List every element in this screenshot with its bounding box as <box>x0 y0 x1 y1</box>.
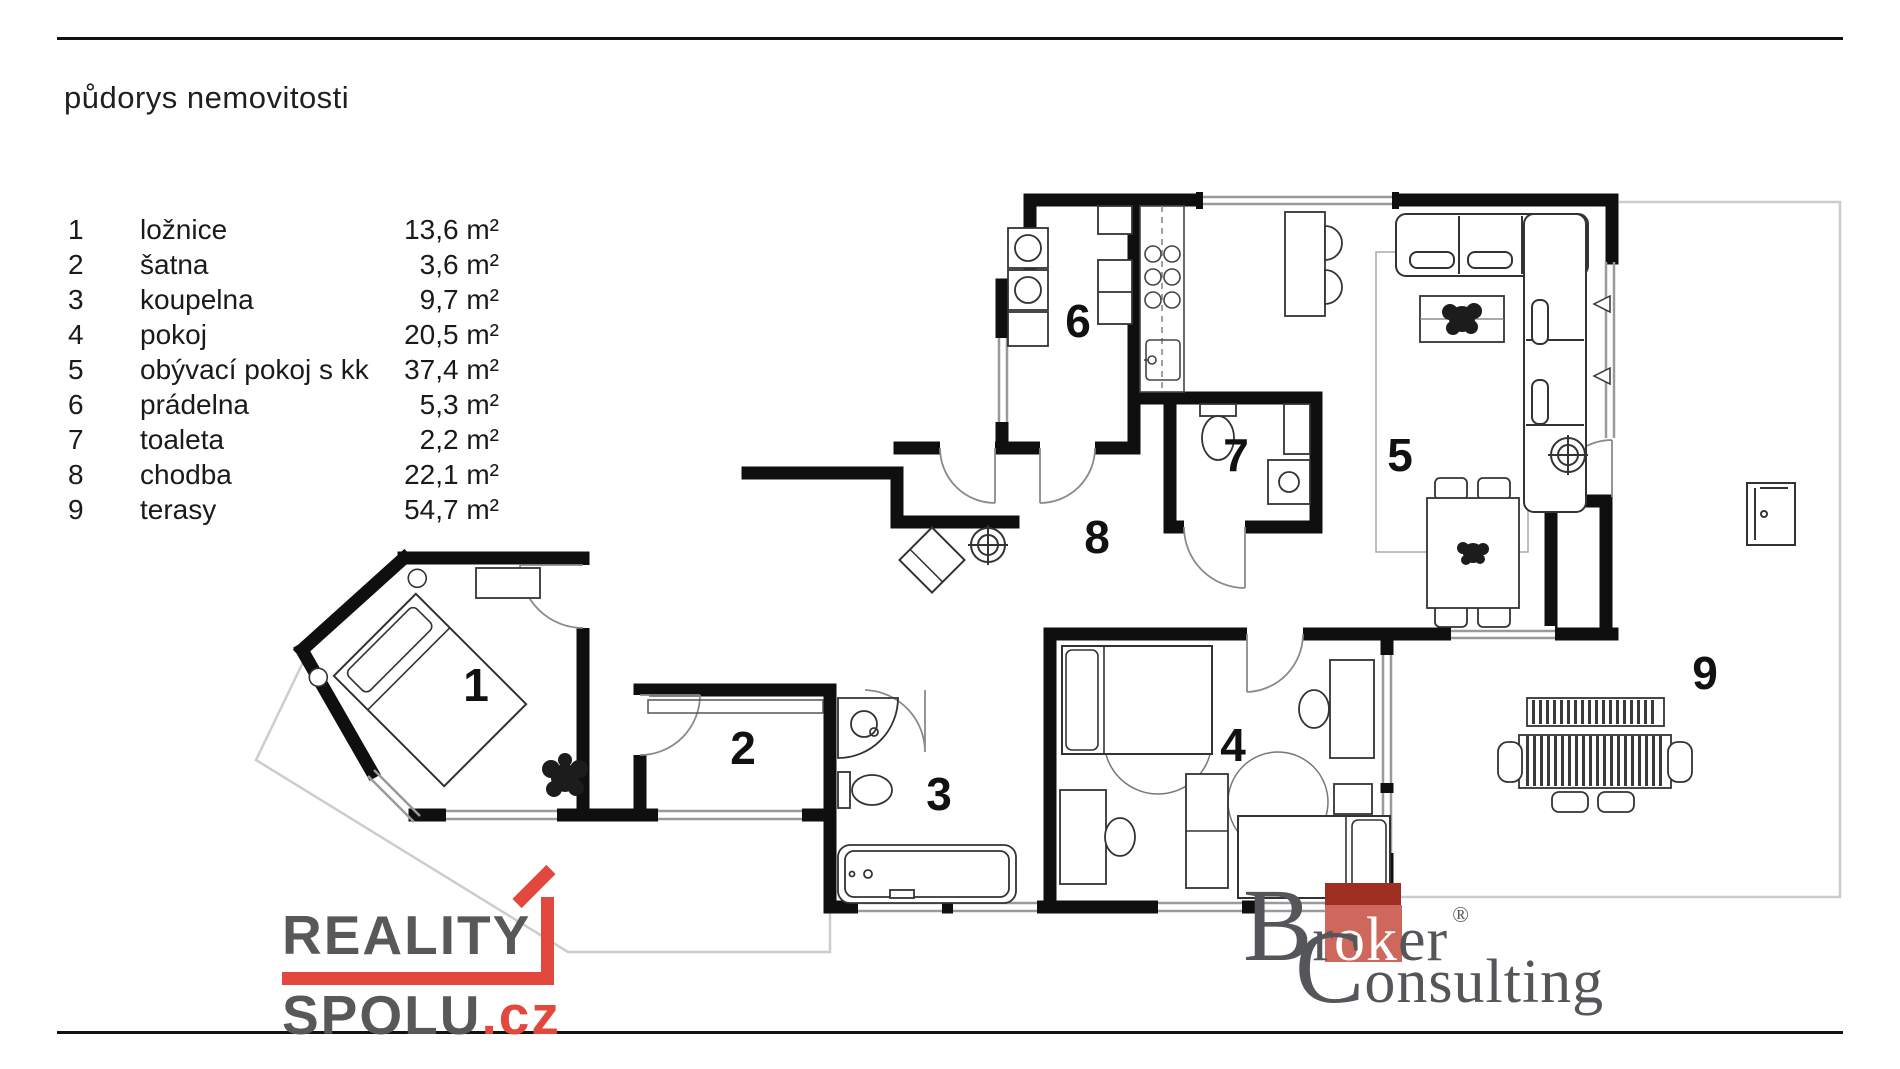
dining-table <box>1427 478 1519 627</box>
reality-spolu-word2: SPOLU <box>282 984 481 1046</box>
room-label-2: 2 <box>730 722 756 774</box>
room-label-1: 1 <box>463 659 489 711</box>
plant <box>1457 542 1489 565</box>
room-label-4: 4 <box>1220 719 1246 771</box>
closet-shelf <box>648 700 823 713</box>
room-label-3: 3 <box>926 768 952 820</box>
room-label-6: 6 <box>1065 295 1091 347</box>
reality-spolu-line2: SPOLU.cz <box>282 983 561 1047</box>
coffee-table <box>1420 296 1504 342</box>
vent-triangles <box>1594 296 1610 384</box>
room-label-9: 9 <box>1692 647 1718 699</box>
room-label-7: 7 <box>1223 429 1249 481</box>
broker-consulting-logo: Broker® Consulting <box>1243 880 1663 1030</box>
kitchen-island <box>1285 212 1342 316</box>
broker-consulting-onsulting: onsulting <box>1364 947 1604 1018</box>
broker-consulting-line2: Consulting <box>1295 908 1604 1027</box>
hallway-chair <box>899 527 964 592</box>
reality-spolu-tld: .cz <box>481 984 560 1046</box>
reality-spolu-logo: REALITY SPOLU.cz <box>280 903 600 1043</box>
terrace-unit <box>1747 483 1795 545</box>
room-label-8: 8 <box>1084 511 1110 563</box>
kidsroom-furniture <box>1060 646 1390 898</box>
bedroom1-dresser <box>476 568 540 598</box>
terrace-furniture <box>1498 698 1692 812</box>
reality-spolu-word1: REALITY <box>282 903 531 967</box>
bedroom1-bed <box>306 566 541 801</box>
room-label-5: 5 <box>1387 429 1413 481</box>
sofa <box>1396 214 1588 512</box>
reality-spolu-accent-vertical <box>541 897 554 985</box>
page: { "page": { "title": "půdorys nemovitost… <box>0 0 1900 1069</box>
shaft <box>1551 501 1606 634</box>
broker-consulting-c: C <box>1295 908 1364 1027</box>
toilet-fixtures <box>1200 404 1310 504</box>
hallway-light-fixture <box>968 525 1008 565</box>
kitchen-counter <box>1140 206 1184 392</box>
